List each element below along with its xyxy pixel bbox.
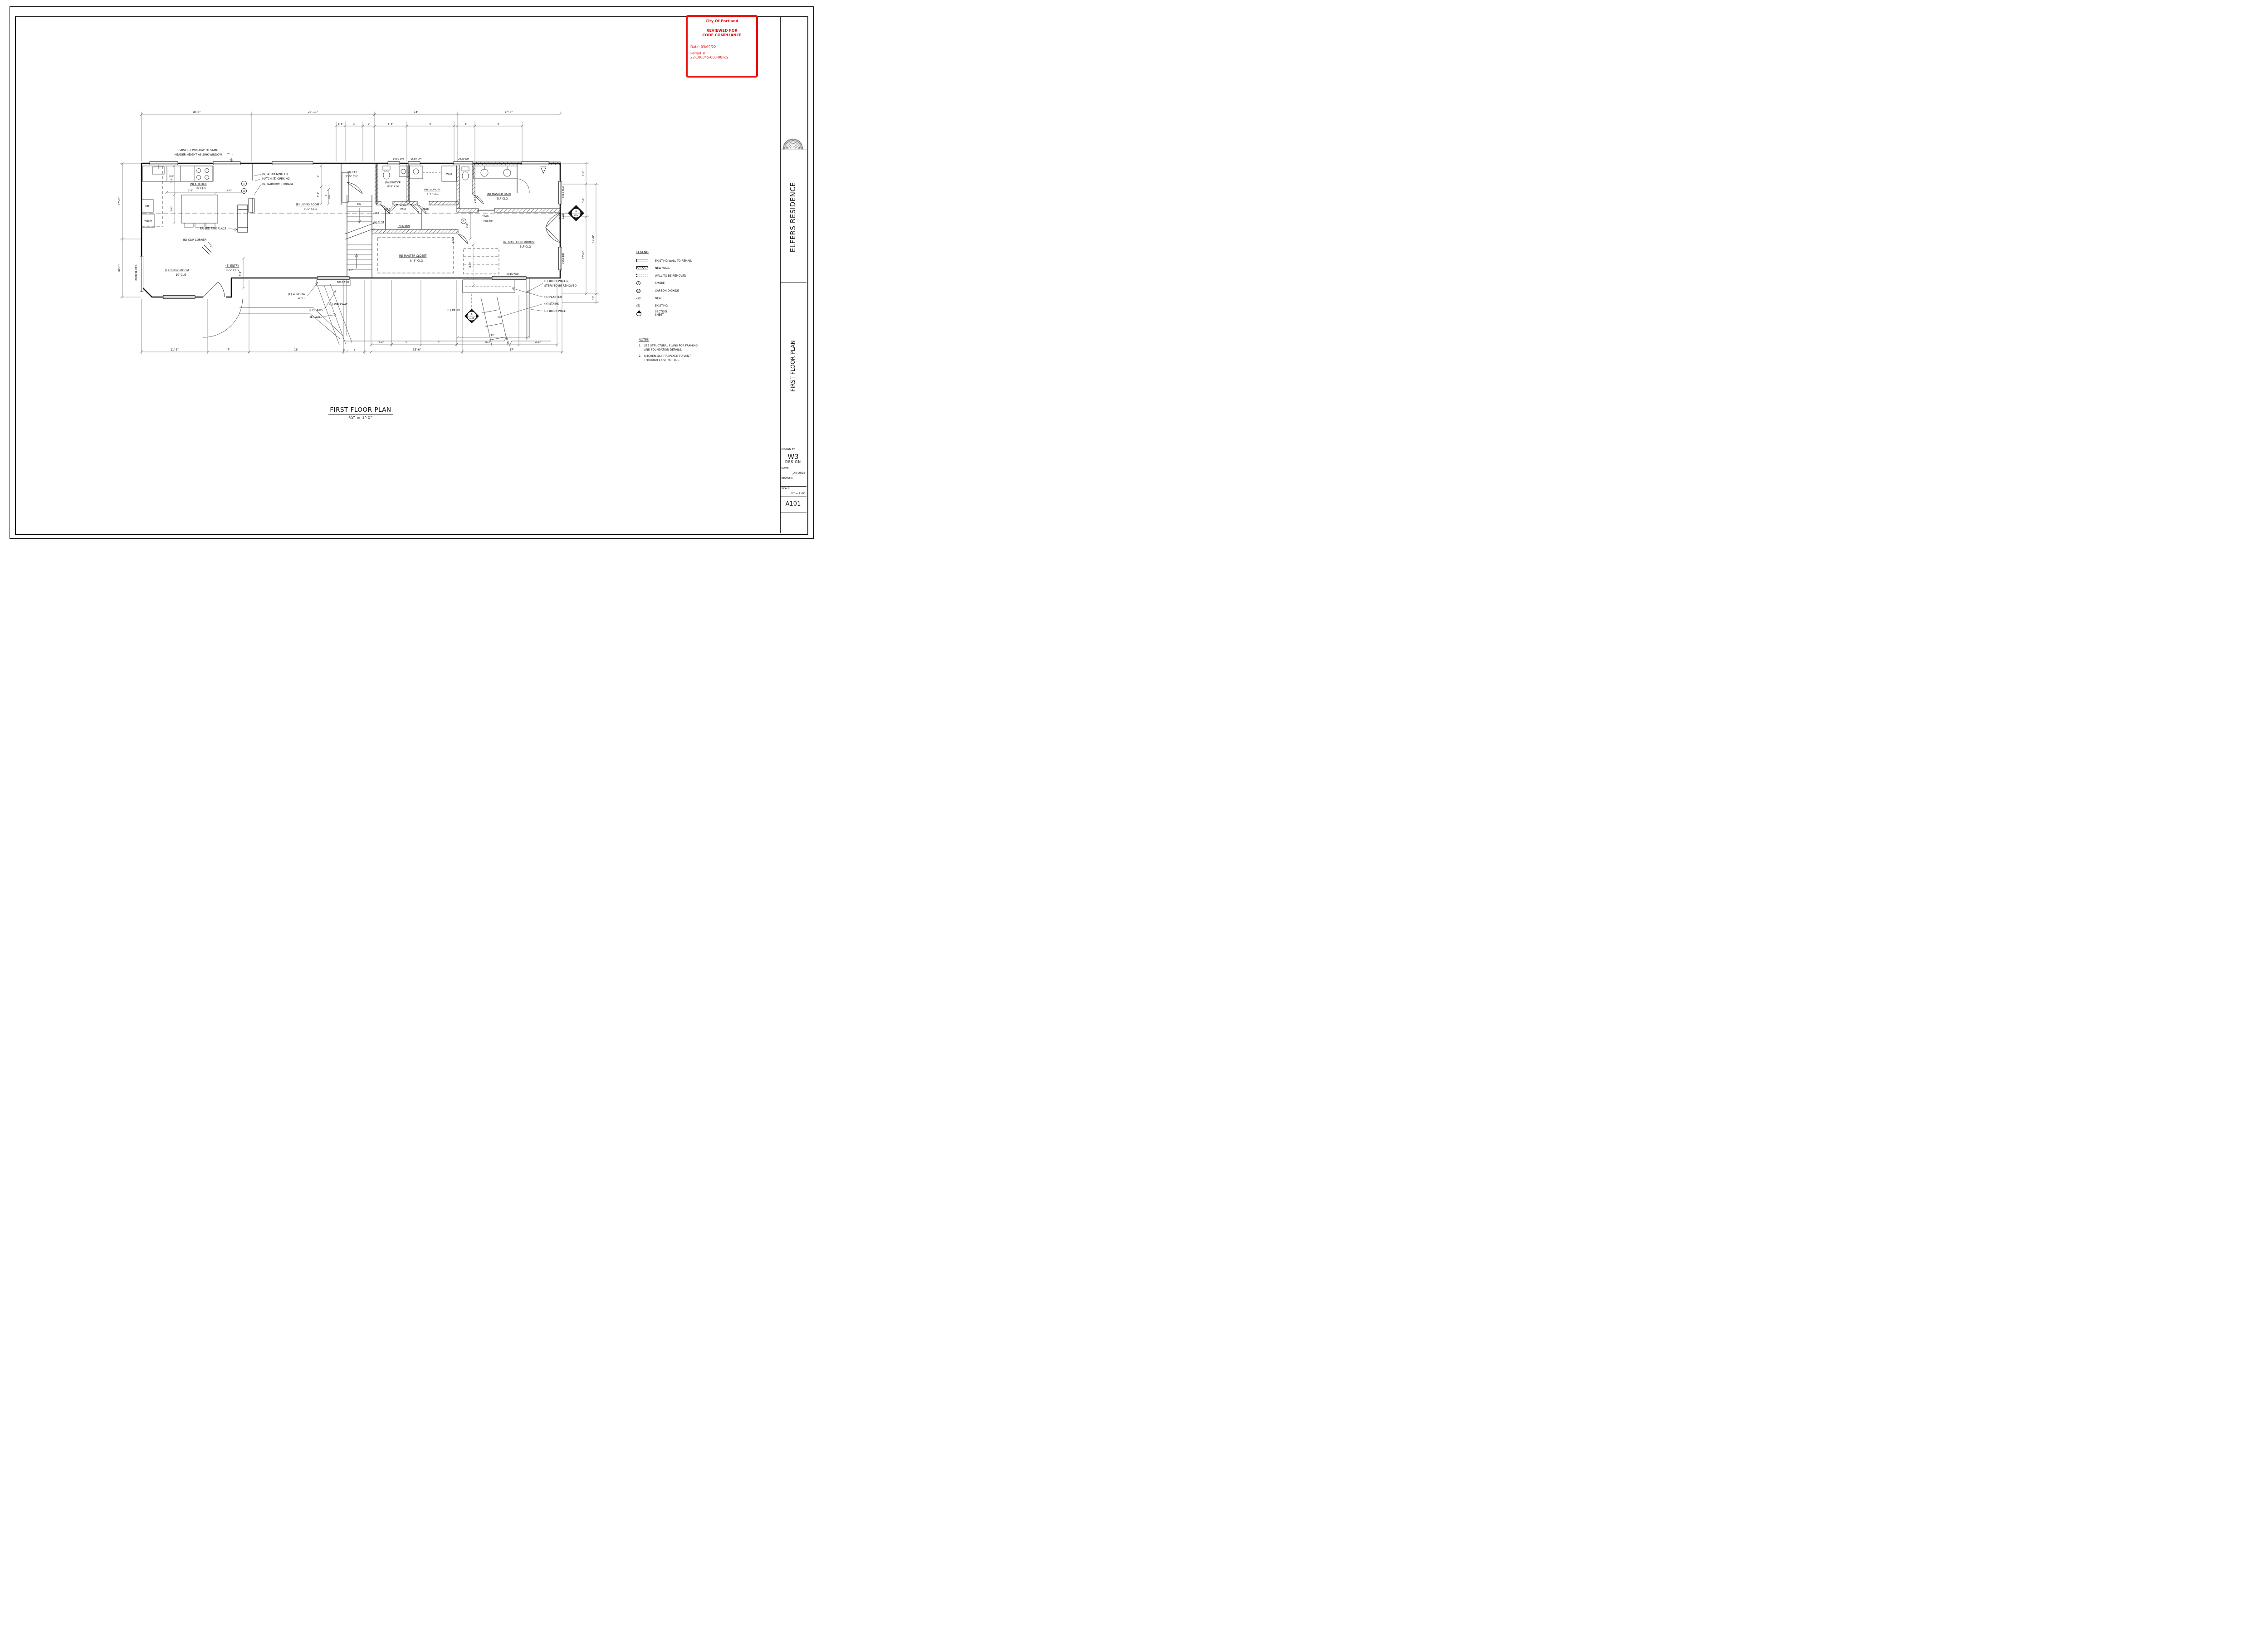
note-walkway: (E) WALKWAY	[329, 303, 347, 306]
dim: 15'-6"	[413, 348, 421, 351]
dim: 10'-6"	[484, 341, 491, 344]
new-walls	[372, 162, 560, 233]
room-living-clg: 8'-5" CLG	[304, 208, 317, 211]
dim: 3'-6"	[582, 171, 585, 176]
dim: 3'	[325, 195, 327, 197]
note-fireplace: RAISED FIRE PLACE	[200, 227, 226, 230]
note-clip-corner: (N) CLIP CORNER	[183, 239, 206, 242]
dim: 14'	[414, 111, 418, 114]
stairs	[345, 202, 374, 270]
room-kitchen-clg: 10' CLG	[195, 187, 206, 190]
door-2668: 2668	[474, 197, 477, 203]
dim: 8'	[430, 123, 432, 126]
stairs-down-label: DN	[357, 203, 361, 206]
fixture-pantry: PANTRY	[143, 220, 152, 223]
note-stairs-e: (E) STAIRS	[309, 309, 323, 312]
room-laundry-clg: 8'-5" CLG	[427, 193, 439, 195]
dimension-lines	[120, 112, 599, 354]
room-clst: (N) CLST	[373, 221, 385, 224]
site-features	[240, 278, 551, 347]
room-master-bath-clg: SLP CLG	[497, 197, 508, 200]
dim: 3'	[465, 123, 467, 126]
dim: 17'-6"	[504, 111, 513, 114]
dim: 6'-6"	[535, 341, 541, 344]
doors	[203, 179, 560, 337]
window-3016sld: 3016 SLD	[562, 186, 565, 199]
door-2668: 2668	[452, 237, 455, 243]
section-marker-a: A	[575, 210, 577, 213]
note-narrow-storage: (N) NARROW STORAGE	[262, 183, 293, 186]
door-5068-pair: 5068	[559, 213, 562, 219]
code-compliance-stamp: City Of Portland REVIEWED FOR CODE COMPL…	[686, 15, 758, 78]
stamp-permit-number: 22-100845-000-00-RS	[690, 55, 756, 59]
section-marker-b: B	[471, 313, 473, 316]
room-powder: (N) POWDER	[385, 181, 401, 184]
door-4068-pair: 4068	[400, 205, 406, 207]
dim: 3'	[353, 123, 356, 126]
dim: 12'-8"	[118, 197, 121, 205]
dim: 16'	[294, 348, 298, 351]
dim: MIN.	[328, 194, 331, 199]
fixture-refrigerator: REF	[145, 205, 150, 208]
door-2668: 2668	[422, 208, 429, 211]
note-brick-steps: STEPS TO BE REMOVED	[544, 284, 577, 288]
note-stairs-n: (N) STAIRS	[544, 302, 559, 306]
note-patio: (E) PATIO	[447, 309, 460, 312]
svg-text:S: S	[243, 183, 244, 185]
stamp-city: City Of Portland	[688, 19, 756, 23]
room-laundry: (N) LAUNDRY	[424, 189, 441, 191]
dim: 2'	[368, 123, 370, 126]
room-master-closet-clg: 8'-5" CLG	[410, 259, 423, 263]
room-bar-clg: 8'-5" CLG	[346, 175, 359, 178]
room-living: (E) LIVING ROOM	[296, 203, 319, 206]
dim: 11'-3"	[171, 348, 179, 351]
room-powder-clg: 8'-5" CLG	[387, 185, 399, 188]
dim: 3'-6"	[378, 341, 384, 344]
dim: 19'-8"	[592, 235, 595, 243]
room-entry: (E) ENTRY	[225, 264, 239, 268]
room-bar: (N) BAR	[347, 171, 357, 174]
dim: 5'-6"	[239, 271, 242, 276]
door-2668: 2668	[384, 208, 390, 211]
door-2668: 2668	[373, 212, 379, 214]
note-wall-e: (E) WALL	[310, 316, 322, 319]
window-5016fxd: 5016 FXD	[337, 281, 349, 284]
fixture-washer-dryer: W/D	[446, 173, 452, 176]
window-1630dh: 1630 DH	[411, 158, 421, 161]
room-master-bedroom-clg: SLP CLG	[520, 245, 531, 249]
note-opening: MATCH (E) OPENING	[262, 177, 290, 180]
stamp-date: Date: 03/09/22	[690, 45, 756, 49]
door-5068-pair: PAIR	[562, 214, 565, 219]
note-raise-window: RAISE (E) WINDOW TO SAME	[179, 149, 218, 152]
note-window-well: WELL	[298, 297, 306, 300]
room-master-closet: (N) MASTER CLOSET	[399, 254, 426, 258]
window-8068-slider: 8068 SLIDER	[135, 264, 138, 281]
stamp-reviewed-2: CODE COMPLIANCE	[688, 33, 756, 38]
section-marker-b: A106	[469, 317, 474, 319]
w3-fan-logo	[783, 139, 803, 150]
dim: 4'-6"	[466, 223, 469, 228]
dim: 1'-6"	[338, 123, 343, 126]
note-planter: (N) PLANTER	[544, 296, 562, 299]
dim: 12'-8"	[582, 251, 585, 259]
dim: 3'-6"	[171, 178, 173, 183]
room-dining-clg: 10' CLG	[176, 273, 186, 277]
dim: 8'-2"	[469, 262, 472, 268]
stairs-up-label: UP	[349, 269, 353, 272]
stamp-permit-label: Permit #:	[690, 51, 756, 55]
room-kitchen: (N) KITCHEN	[190, 183, 206, 186]
note-opening: (N) 4' OPENING TO	[262, 173, 288, 176]
section-markers	[464, 205, 584, 323]
section-marker-a: A106	[574, 214, 579, 217]
dim: 3'	[354, 349, 356, 351]
dim: 5'-6"	[582, 198, 585, 203]
dim: 6'-6"	[188, 190, 193, 192]
note-raise-window: HEADER HEIGHT AS SINK WINDOW	[175, 153, 222, 156]
window-3050dh: 3050 DH	[562, 253, 565, 264]
window-2630dh: 2630 DH	[458, 158, 469, 161]
dim: 17'	[509, 348, 514, 351]
dim: 10'-0"	[118, 264, 121, 273]
dim: 6'	[438, 341, 440, 344]
room-linen: (N) LINEN	[398, 225, 410, 228]
door-4068-pair: PAIR	[401, 208, 406, 211]
window-5016fxd: 5016 FXD	[507, 273, 519, 276]
dim: 3'-6"	[171, 206, 173, 212]
interior-walls	[202, 163, 517, 278]
dim: 5'	[317, 175, 320, 178]
room-master-bath: (N) MASTER BATH	[487, 193, 511, 196]
dim: 5'-6"	[388, 123, 393, 126]
dim: 18"	[592, 296, 595, 300]
dim: 7'	[227, 348, 230, 351]
stamp-reviewed-1: REVIEWED FOR	[688, 29, 756, 33]
dim: 18'-8"	[192, 111, 200, 114]
dashed-lines	[142, 166, 560, 274]
room-master-bedroom: (N) MASTER BEDROOM	[503, 241, 534, 244]
room-dining: (E) DINING ROOM	[165, 269, 189, 272]
door-2668-pocket: 2668	[482, 215, 489, 218]
drawing-sheet: { "sheet": { "stamp": { "title": "City O…	[0, 0, 816, 544]
svg-text:S: S	[463, 220, 464, 223]
svg-text:CO: CO	[243, 190, 245, 192]
dim: 5'	[406, 341, 408, 344]
door-2668-pocket: POCKET	[484, 220, 494, 223]
dim: 3'-6"	[317, 192, 320, 197]
note-brick-steps: (E) BRICK WALL &	[544, 280, 569, 283]
note-window-well: (E) WINDOW	[288, 293, 305, 296]
dim: 8'	[498, 123, 500, 126]
window-1630dh: 1630 DH	[393, 158, 404, 161]
dim: 12'	[491, 334, 494, 337]
dim: 20'-11"	[308, 111, 318, 114]
note-brick-wall: (E) BRICK WALL	[544, 310, 566, 313]
floor-plan: S CO S (N) KITCHEN10' CLG(E) DINING ROOM…	[0, 0, 816, 544]
room-entry-clg: 8'-5" CLG	[226, 269, 239, 272]
dim: 3'-6"	[226, 190, 232, 192]
dim: 6"	[343, 349, 345, 351]
